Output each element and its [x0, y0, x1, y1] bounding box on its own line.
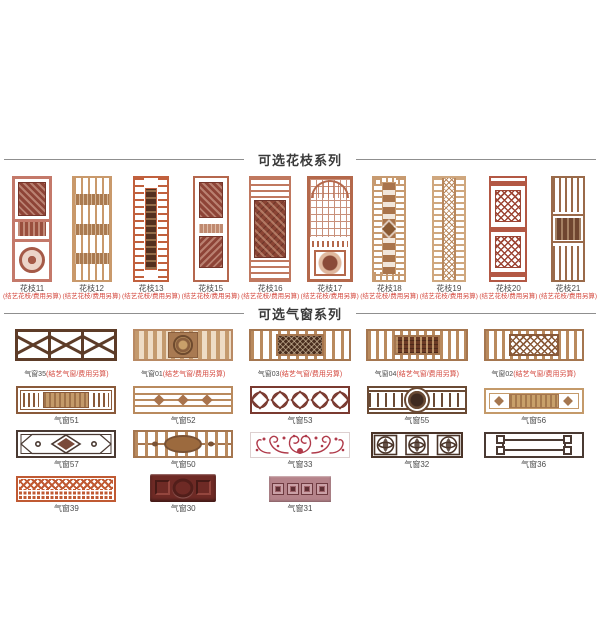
flower-panel-caption: 花枝18 (结艺花枝/费用另算) — [360, 284, 418, 301]
transom-image — [366, 329, 468, 361]
transom-image — [371, 432, 463, 458]
transom-label: 气窗02 — [491, 371, 513, 378]
transom-card: 气窗03(结艺气窗/费用另算) — [242, 329, 359, 381]
transom-caption: 气窗02(结艺气窗/费用另算) — [491, 363, 575, 381]
x-lattice-pane — [18, 332, 48, 358]
flower-panel-caption: 花枝13 (结艺花枝/费用另算) — [122, 284, 180, 301]
transom-label: 气窗52 — [171, 416, 196, 425]
transom-caption: 气窗50 — [171, 460, 196, 469]
section-header-flower: 可选花枝系列 — [0, 150, 600, 168]
flower-panel-image — [372, 176, 406, 282]
transom-image — [16, 386, 116, 414]
flower-panel-card: 花枝20 (结艺花枝/费用另算) — [482, 176, 534, 301]
diamond-knob — [494, 396, 504, 406]
corner-bracket — [496, 435, 505, 444]
transom-caption: 气窗04(结艺气窗/费用另算) — [375, 363, 459, 381]
flower-panel-caption: 花枝19 (结艺花枝/费用另算) — [420, 284, 478, 301]
transom-note: (结艺气窗/费用另算) — [163, 371, 226, 378]
flower-panel-note: (结艺花枝/费用另算) — [241, 293, 299, 300]
transom-caption: 气窗01(结艺气窗/费用另算) — [141, 363, 225, 381]
inset-square — [301, 483, 313, 495]
transom-caption: 气窗57 — [54, 460, 79, 469]
transom-card: 气窗55 — [358, 386, 475, 425]
flower-panel-label: 花枝13 — [122, 284, 180, 293]
transom-card: 气窗01(结艺气窗/费用另算) — [125, 329, 242, 381]
transom-label: 气窗50 — [171, 460, 196, 469]
transom-caption: 气窗55 — [404, 416, 429, 425]
transom-image — [484, 388, 584, 414]
flower-panel-card: 花枝12 (结艺花枝/费用另算) — [66, 176, 118, 301]
flower-panel-label: 花枝16 — [241, 284, 299, 293]
flower-panel-image — [133, 176, 169, 282]
transom-card: 气窗35(结艺气窗/费用另算) — [8, 329, 125, 381]
transom-card: 气窗50 — [125, 430, 242, 469]
transom-note: (结艺气窗/费用另算) — [396, 371, 459, 378]
flower-panel-image — [12, 176, 52, 282]
flower-panel-card: 花枝17 (结艺花枝/费用另算) — [304, 176, 356, 301]
transom-card: 气窗52 — [125, 386, 242, 425]
transom-label: 气窗32 — [404, 460, 429, 469]
flower-panel-note: (结艺花枝/费用另算) — [479, 293, 537, 300]
transom-image — [269, 476, 331, 502]
flower-panel-label: 花枝11 — [3, 284, 61, 293]
transom-card: 气窗32 — [358, 430, 475, 469]
flower-panel-note: (结艺花枝/费用另算) — [122, 293, 180, 300]
divider-line — [4, 313, 244, 314]
transom-note: (结艺气窗/费用另算) — [46, 371, 109, 378]
slat-band — [312, 241, 348, 247]
transom-caption: 气窗31 — [288, 504, 313, 513]
catalog-page: 可选花枝系列 花枝11 (结艺花枝/费用另算) 花枝12 (结艺花枝/费用另算)… — [0, 0, 600, 628]
flower-panel-image — [72, 176, 112, 282]
transom-image — [133, 430, 233, 458]
diamond-knob — [563, 396, 573, 406]
transom-label: 气窗30 — [171, 504, 196, 513]
transom-caption: 气窗39 — [54, 504, 79, 513]
flower-panel-card: 花枝21 (结艺花枝/费用另算) — [542, 176, 594, 301]
carved-band — [18, 222, 46, 236]
transom-card: 气窗56 — [475, 386, 592, 425]
transom-image — [16, 430, 116, 458]
flower-panel-note: (结艺花枝/费用另算) — [301, 293, 359, 300]
transom-note: (结艺气窗/费用另算) — [280, 371, 343, 378]
flower-panel-note: (结艺花枝/费用另算) — [3, 293, 61, 300]
flower-panel-note: (结艺花枝/费用另算) — [539, 293, 597, 300]
transom-label: 气窗39 — [54, 504, 79, 513]
transom-note: (结艺气窗/费用另算) — [513, 371, 576, 378]
transom-image — [484, 432, 584, 458]
transom-image — [249, 329, 351, 361]
transom-label: 气窗03 — [258, 371, 280, 378]
transom-label: 气窗57 — [54, 460, 79, 469]
flower-panel-label: 花枝12 — [62, 284, 120, 293]
corner-bracket — [496, 446, 505, 455]
transom-image — [133, 386, 233, 414]
flower-panel-card: 花枝16 (结艺花枝/费用另算) — [244, 176, 296, 301]
flower-panel-image — [249, 176, 291, 282]
flower-section-title: 可选花枝系列 — [258, 150, 342, 169]
x-lattice-pane — [48, 332, 81, 358]
transom-caption: 气窗53 — [288, 416, 313, 425]
flower-panel-image — [307, 176, 353, 282]
inset-square — [287, 483, 299, 495]
x-lattice-pane — [81, 332, 114, 358]
transom-label: 气窗56 — [521, 416, 546, 425]
transom-label: 气窗53 — [288, 416, 313, 425]
transom-image — [15, 329, 117, 361]
flower-panel-card: 花枝13 (结艺花枝/费用另算) — [125, 176, 177, 301]
flower-panel-note: (结艺花枝/费用另算) — [420, 293, 478, 300]
corner-bracket — [563, 435, 572, 444]
transom-caption: 气窗56 — [521, 416, 546, 425]
transom-image — [250, 432, 350, 458]
flower-panel-label: 花枝17 — [301, 284, 359, 293]
flower-panel-label: 花枝18 — [360, 284, 418, 293]
corner-bracket — [563, 446, 572, 455]
oval-ring — [173, 479, 194, 498]
flower-panel-caption: 花枝20 (结艺花枝/费用另算) — [479, 284, 537, 301]
transom-card: 气窗31 — [242, 474, 359, 513]
transom-caption: 气窗52 — [171, 416, 196, 425]
transom-caption: 气窗35(结艺气窗/费用另算) — [24, 363, 108, 381]
transom-image — [150, 474, 216, 502]
transom-card: 气窗57 — [8, 430, 125, 469]
flower-panel-card: 花枝19 (结艺花枝/费用另算) — [423, 176, 475, 301]
flower-panel-caption: 花枝15 (结艺花枝/费用另算) — [182, 284, 240, 301]
flower-panel-note: (结艺花枝/费用另算) — [360, 293, 418, 300]
flower-panel-caption: 花枝17 (结艺花枝/费用另算) — [301, 284, 359, 301]
diamond-knob — [154, 394, 165, 405]
flower-panel-label: 花枝20 — [479, 284, 537, 293]
transom-caption: 气窗33 — [288, 460, 313, 469]
transom-caption: 气窗51 — [54, 416, 79, 425]
flower-panel-card: 花枝11 (结艺花枝/费用另算) — [6, 176, 58, 301]
transom-caption: 气窗03(结艺气窗/费用另算) — [258, 363, 342, 381]
transom-grid: 气窗35(结艺气窗/费用另算) 气窗01(结艺气窗/费用另算) 气窗03(结艺气… — [0, 329, 600, 514]
diamond-knob — [178, 394, 189, 405]
transom-label: 气窗35 — [24, 371, 46, 378]
transom-image — [484, 329, 584, 361]
flower-panel-row: 花枝11 (结艺花枝/费用另算) 花枝12 (结艺花枝/费用另算) 花枝13 (… — [0, 176, 600, 301]
transom-caption: 气窗30 — [171, 504, 196, 513]
transom-card: 气窗51 — [8, 386, 125, 425]
flower-panel-image — [432, 176, 466, 282]
flower-panel-image — [193, 176, 229, 282]
section-header-transom: 可选气窗系列 — [0, 305, 600, 323]
transom-image — [16, 476, 116, 502]
flower-panel-image — [551, 176, 585, 282]
flower-panel-label: 花枝19 — [420, 284, 478, 293]
divider-line — [356, 159, 596, 160]
flower-panel-card: 花枝18 (结艺花枝/费用另算) — [363, 176, 415, 301]
transom-card: 气窗33 — [242, 430, 359, 469]
transom-label: 气窗51 — [54, 416, 79, 425]
transom-section-title: 可选气窗系列 — [258, 304, 342, 323]
carved-band — [199, 224, 223, 233]
flower-panel-caption: 花枝11 (结艺花枝/费用另算) — [3, 284, 61, 301]
transom-caption: 气窗32 — [404, 460, 429, 469]
carved-band — [75, 224, 109, 235]
diamond-knob — [202, 394, 213, 405]
flower-panel-image — [489, 176, 527, 282]
flower-panel-label: 花枝21 — [539, 284, 597, 293]
flower-panel-card: 花枝15 (结艺花枝/费用另算) — [185, 176, 237, 301]
divider-line — [356, 313, 596, 314]
transom-label: 气窗55 — [404, 416, 429, 425]
inset-square — [316, 483, 328, 495]
inset-square — [272, 483, 284, 495]
transom-image — [250, 386, 350, 414]
divider-line — [4, 159, 244, 160]
transom-image — [133, 329, 233, 361]
flower-panel-caption: 花枝16 (结艺花枝/费用另算) — [241, 284, 299, 301]
transom-card: 气窗04(结艺气窗/费用另算) — [358, 329, 475, 381]
transom-card: 气窗02(结艺气窗/费用另算) — [475, 329, 592, 381]
transom-card: 气窗39 — [8, 474, 125, 513]
transom-label: 气窗33 — [288, 460, 313, 469]
flower-panel-note: (结艺花枝/费用另算) — [182, 293, 240, 300]
transom-label: 气窗04 — [375, 371, 397, 378]
transom-image — [367, 386, 467, 414]
transom-label: 气窗01 — [141, 371, 163, 378]
transom-label: 气窗36 — [521, 460, 546, 469]
flower-panel-label: 花枝15 — [182, 284, 240, 293]
flower-panel-caption: 花枝21 (结艺花枝/费用另算) — [539, 284, 597, 301]
transom-caption: 气窗36 — [521, 460, 546, 469]
transom-card: 气窗30 — [125, 474, 242, 513]
flower-panel-note: (结艺花枝/费用另算) — [62, 293, 120, 300]
flower-panel-caption: 花枝12 (结艺花枝/费用另算) — [62, 284, 120, 301]
transom-label: 气窗31 — [288, 504, 313, 513]
transom-card: 气窗53 — [242, 386, 359, 425]
transom-card: 气窗36 — [475, 430, 592, 469]
